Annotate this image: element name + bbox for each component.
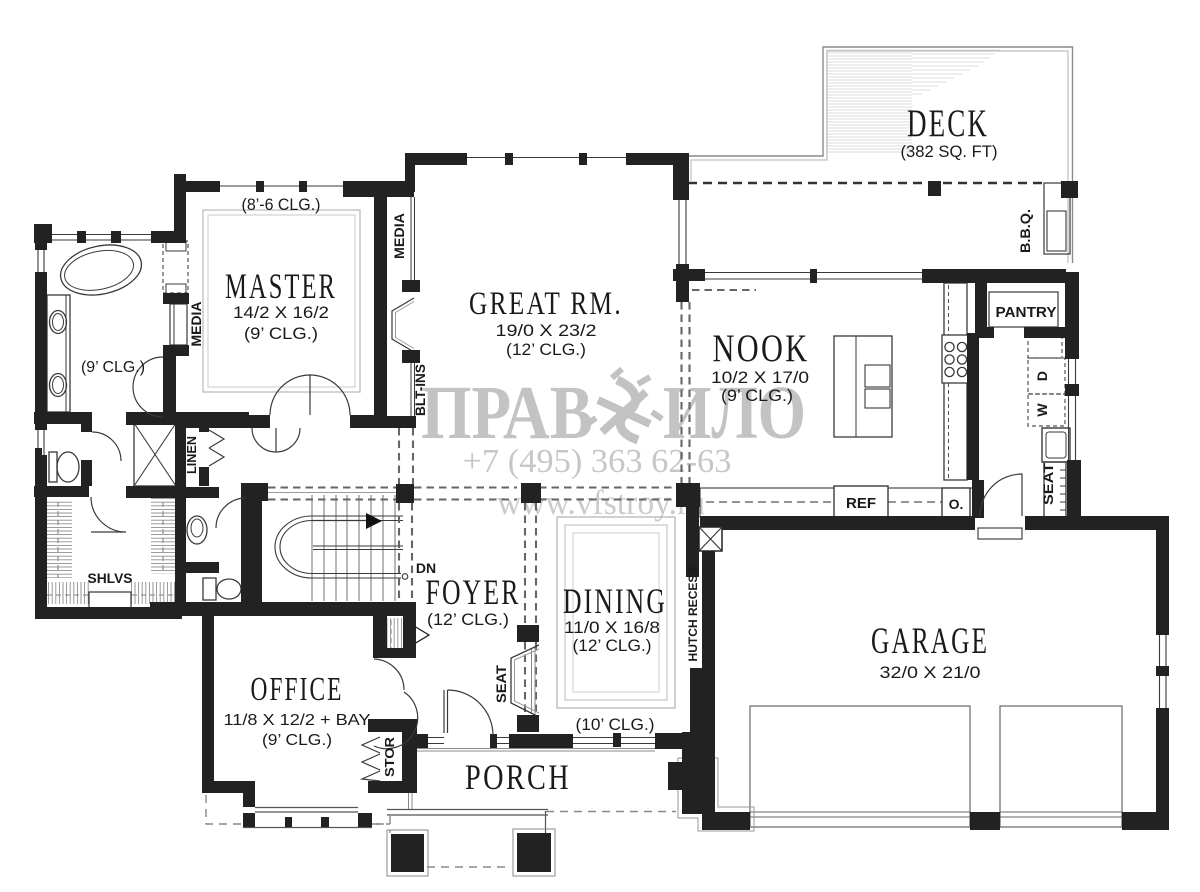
svg-text:11/8 X 12/2 + BAY: 11/8 X 12/2 + BAY [224, 712, 371, 729]
svg-text:REF: REF [846, 495, 876, 512]
svg-text:BLT-INS: BLT-INS [412, 364, 428, 416]
svg-text:(8’-6 CLG.): (8’-6 CLG.) [242, 196, 321, 214]
svg-text:O.: O. [949, 496, 964, 512]
svg-text:GREAT RM.: GREAT RM. [469, 286, 623, 322]
svg-text:HUTCH RECESS: HUTCH RECESS [686, 567, 700, 662]
svg-text:NOOK: NOOK [713, 327, 810, 370]
svg-text:(382 SQ. FT): (382 SQ. FT) [901, 143, 998, 161]
svg-text:(9’ CLG.): (9’ CLG.) [81, 359, 145, 376]
svg-text:(9’ CLG.): (9’ CLG.) [721, 387, 793, 405]
svg-text:MEDIA: MEDIA [188, 302, 204, 347]
svg-text:MASTER: MASTER [225, 266, 337, 306]
svg-text:SHLVS: SHLVS [88, 570, 133, 586]
svg-text:D: D [1034, 371, 1050, 381]
svg-text:FOYER: FOYER [426, 572, 521, 612]
svg-text:PORCH: PORCH [465, 757, 571, 797]
svg-text:(9’ CLG.): (9’ CLG.) [262, 732, 332, 749]
svg-text:(12’ CLG.): (12’ CLG.) [427, 611, 509, 629]
svg-text:32/0 X 21/0: 32/0 X 21/0 [880, 664, 981, 682]
svg-text:GARAGE: GARAGE [871, 621, 989, 662]
svg-text:LINEN: LINEN [184, 436, 199, 474]
svg-text:+7 (495) 363 62-63: +7 (495) 363 62-63 [463, 443, 732, 480]
svg-text:19/0 X 23/2: 19/0 X 23/2 [496, 322, 597, 340]
svg-text:11/0 X 16/8: 11/0 X 16/8 [564, 619, 660, 637]
svg-text:MEDIA: MEDIA [391, 213, 407, 259]
svg-text:W: W [1034, 403, 1050, 417]
svg-text:(9’ CLG.): (9’ CLG.) [244, 325, 318, 343]
svg-text:10/2 X 17/0: 10/2 X 17/0 [711, 369, 809, 387]
svg-text:(12’ CLG.): (12’ CLG.) [506, 341, 586, 359]
svg-text:(10’ CLG.): (10’ CLG.) [576, 716, 655, 734]
svg-text:B.B.Q.: B.B.Q. [1017, 209, 1033, 253]
svg-text:PANTRY: PANTRY [996, 304, 1057, 321]
svg-text:SEAT: SEAT [1040, 462, 1056, 505]
svg-text:14/2 X 16/2: 14/2 X 16/2 [233, 304, 329, 322]
svg-text:DINING: DINING [563, 581, 667, 621]
svg-text:(12’ CLG.): (12’ CLG.) [573, 637, 652, 655]
svg-text:DECK: DECK [907, 102, 989, 145]
svg-text:STOR: STOR [382, 736, 397, 777]
svg-text:SEAT: SEAT [493, 665, 509, 703]
svg-text:OFFICE: OFFICE [251, 671, 344, 708]
